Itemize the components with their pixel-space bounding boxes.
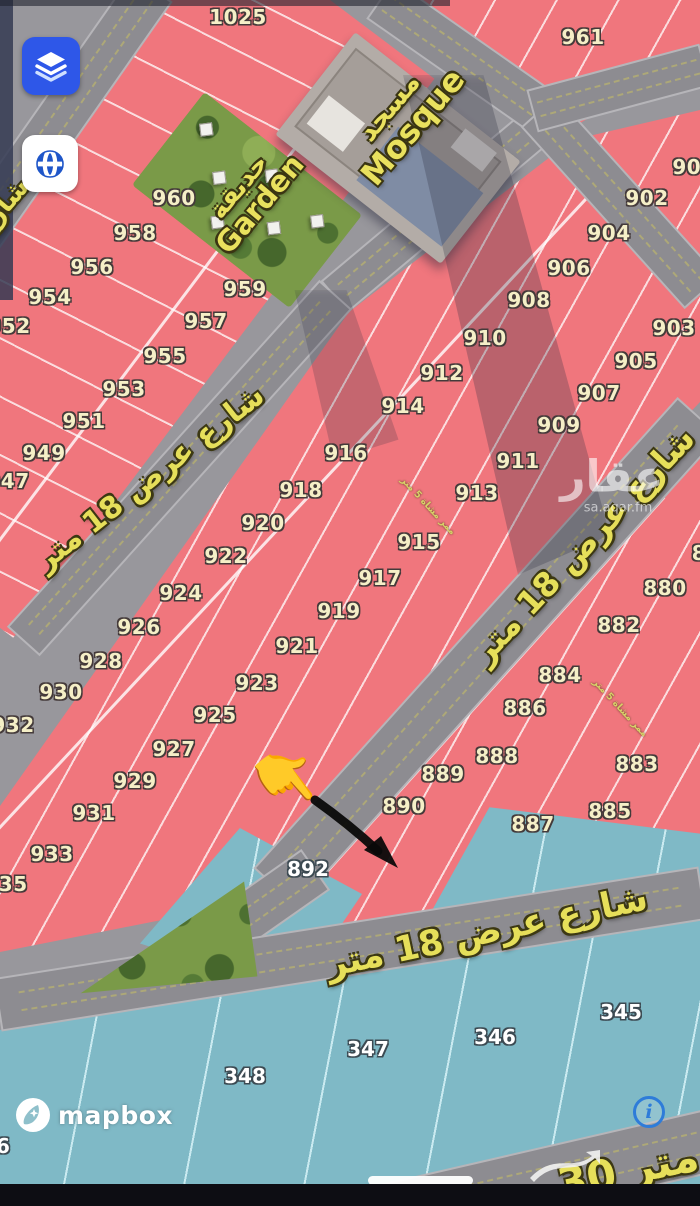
plot-number: 949: [22, 441, 65, 465]
bottom-bar: [0, 1184, 700, 1206]
plot-number: 887: [511, 812, 554, 836]
plot-number: 907: [577, 381, 620, 405]
plot-number: 880: [643, 576, 686, 600]
pedestrian-path-label: ممر مشاة 5 متر: [398, 475, 457, 537]
plot-number: 882: [597, 613, 640, 637]
label-layer: 1025961900902904906908910912914916918920…: [0, 0, 700, 1206]
plot-number: 902: [625, 186, 668, 210]
plot-number: 923: [235, 671, 278, 695]
plot-number: 889: [421, 762, 464, 786]
plot-number: 890: [382, 794, 425, 818]
street-name-label: شارع عرض 18 متر: [323, 878, 652, 985]
plot-number: 908: [507, 288, 550, 312]
plot-number: 931: [72, 801, 115, 825]
plot-number: 920: [241, 511, 284, 535]
plot-number: 885: [588, 799, 631, 823]
plot-number: 924: [159, 581, 202, 605]
plot-number: 900: [672, 155, 700, 179]
plot-number: 914: [381, 394, 424, 418]
plot-number: 905: [614, 349, 657, 373]
plot-number: 935: [0, 872, 28, 896]
plot-number: 1025: [209, 5, 267, 29]
plot-number: 915: [397, 530, 440, 554]
plot-number: 906: [547, 256, 590, 280]
plot-number: 928: [79, 649, 122, 673]
info-icon: i: [645, 1101, 652, 1123]
plot-number: 903: [652, 316, 695, 340]
plot-number: 347: [347, 1037, 389, 1061]
plot-number: 954: [28, 285, 71, 309]
plot-number: 917: [358, 566, 401, 590]
plot-number: 348: [224, 1064, 266, 1088]
plot-number: 953: [102, 377, 145, 401]
plot-number: 912: [420, 361, 463, 385]
plot-number: 926: [117, 615, 160, 639]
plot-number: 883: [615, 752, 658, 776]
plot-number: 910: [463, 326, 506, 350]
plot-number: 918: [279, 478, 322, 502]
street-name-label: شارع عرض 18 متر: [463, 419, 700, 671]
plot-number: 921: [275, 634, 318, 658]
globe-button[interactable]: [22, 135, 78, 192]
plot-number: 345: [600, 1000, 642, 1024]
plot-number: 952: [0, 314, 31, 338]
layers-icon: [33, 48, 69, 84]
plot-number: 947: [0, 469, 30, 493]
plot-number: 919: [317, 599, 360, 623]
plot-number: 909: [537, 413, 580, 437]
layers-button[interactable]: [22, 37, 80, 95]
plot-number: 930: [39, 680, 82, 704]
plot-number: 927: [152, 737, 195, 761]
plot-number: 892: [287, 857, 329, 881]
globe-icon: [33, 147, 67, 181]
plot-number: 956: [70, 255, 113, 279]
pedestrian-path-label: ممر مشاة 5 متر: [590, 677, 649, 739]
plot-number: 904: [587, 221, 630, 245]
plot-number: 911: [496, 449, 539, 473]
plot-number: 916: [324, 441, 367, 465]
plot-number: 932: [0, 713, 35, 737]
plot-number: 346: [474, 1025, 516, 1049]
info-button[interactable]: i: [633, 1096, 665, 1128]
map-canvas[interactable]: 1025961900902904906908910912914916918920…: [0, 0, 700, 1206]
mapbox-logo-icon: [14, 1096, 52, 1134]
plot-number: 884: [538, 663, 581, 687]
mapbox-wordmark: mapbox: [58, 1101, 173, 1130]
plot-number: 925: [193, 703, 236, 727]
plot-number: 961: [561, 25, 604, 49]
plot-number: 957: [184, 309, 227, 333]
plot-number: 958: [113, 221, 156, 245]
plot-number: 955: [143, 344, 186, 368]
plot-number: 886: [503, 696, 546, 720]
plot-number: 951: [62, 409, 105, 433]
street-name-label: شارع عرض 18 متر: [29, 378, 272, 578]
plot-number: 959: [223, 277, 266, 301]
plot-number: 929: [113, 769, 156, 793]
plot-number: 922: [204, 544, 247, 568]
plot-number: 888: [475, 744, 518, 768]
plot-number: 6: [0, 1134, 10, 1158]
mapbox-attribution[interactable]: mapbox: [14, 1096, 173, 1134]
plot-number: 913: [455, 481, 498, 505]
plot-number: 933: [30, 842, 73, 866]
plot-number: 8: [692, 541, 700, 565]
plot-number: 960: [152, 186, 195, 210]
